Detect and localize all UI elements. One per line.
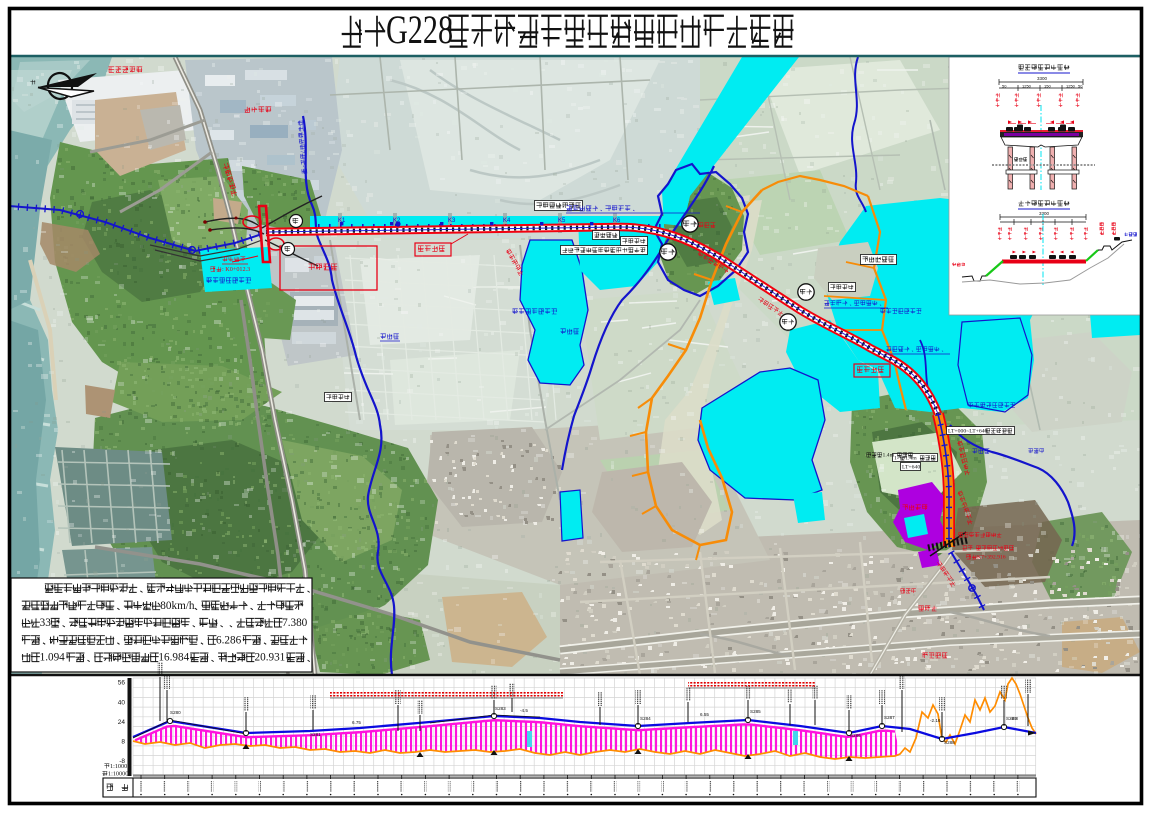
- svg-text:S288: S288: [944, 740, 955, 745]
- svg-text:1.4m: 1.4m: [883, 453, 895, 459]
- svg-text:3300: 3300: [1037, 76, 1048, 81]
- svg-text:6.75: 6.75: [352, 720, 361, 725]
- svg-text:G228: G228: [386, 7, 453, 52]
- svg-text:K6: K6: [613, 218, 621, 224]
- svg-text:S281: S281: [310, 732, 321, 737]
- svg-text:K2: K2: [393, 218, 401, 224]
- svg-text:1250: 1250: [1022, 84, 1032, 89]
- svg-text:7.380: 7.380: [282, 617, 308, 629]
- svg-text:S287: S287: [884, 715, 895, 720]
- svg-text:S285: S285: [750, 709, 761, 714]
- svg-text:K5: K5: [558, 218, 566, 224]
- svg-text:-2.16: -2.16: [930, 718, 941, 723]
- svg-text:6.286: 6.286: [216, 634, 242, 646]
- svg-text:1.4m: 1.4m: [905, 456, 917, 462]
- svg-text:1:10000: 1:10000: [108, 771, 128, 778]
- svg-text:1.094: 1.094: [40, 652, 66, 664]
- svg-text:33: 33: [40, 617, 52, 629]
- svg-text:1-: 1-: [894, 456, 899, 462]
- svg-text:16.984: 16.984: [158, 652, 189, 664]
- svg-text:3300: 3300: [1039, 211, 1050, 216]
- svg-text:K3: K3: [448, 218, 456, 224]
- svg-text:S283: S283: [495, 706, 506, 711]
- svg-text:7: 7: [299, 150, 306, 154]
- svg-text:K4: K4: [503, 218, 511, 224]
- svg-text:50: 50: [1002, 84, 1007, 89]
- svg-text:1250: 1250: [1066, 84, 1076, 89]
- svg-text:24: 24: [118, 719, 126, 726]
- svg-text:: K0+012.3: : K0+012.3: [222, 266, 250, 273]
- svg-text:80km/h: 80km/h: [160, 600, 195, 612]
- svg-text:LT+640: LT+640: [902, 465, 920, 471]
- svg-text:S286: S286: [850, 733, 861, 738]
- svg-text:1:1000: 1:1000: [110, 763, 127, 770]
- svg-text:S280: S280: [170, 710, 181, 715]
- svg-text:-4.5: -4.5: [520, 708, 528, 713]
- svg-text:K7+392.916: K7+392.916: [977, 555, 1006, 561]
- svg-text:50: 50: [1078, 84, 1083, 89]
- svg-text:S289: S289: [1006, 716, 1017, 721]
- svg-text:20.931: 20.931: [255, 652, 286, 664]
- svg-text:56: 56: [118, 680, 126, 687]
- svg-text:150: 150: [1044, 84, 1051, 89]
- svg-text:K1: K1: [338, 218, 346, 224]
- svg-text:6.55: 6.55: [700, 712, 709, 717]
- svg-text:S284: S284: [640, 716, 651, 721]
- svg-text:8: 8: [121, 739, 125, 746]
- svg-text:40: 40: [118, 700, 126, 707]
- svg-text:LT+000~LT+640: LT+000~LT+640: [948, 429, 988, 435]
